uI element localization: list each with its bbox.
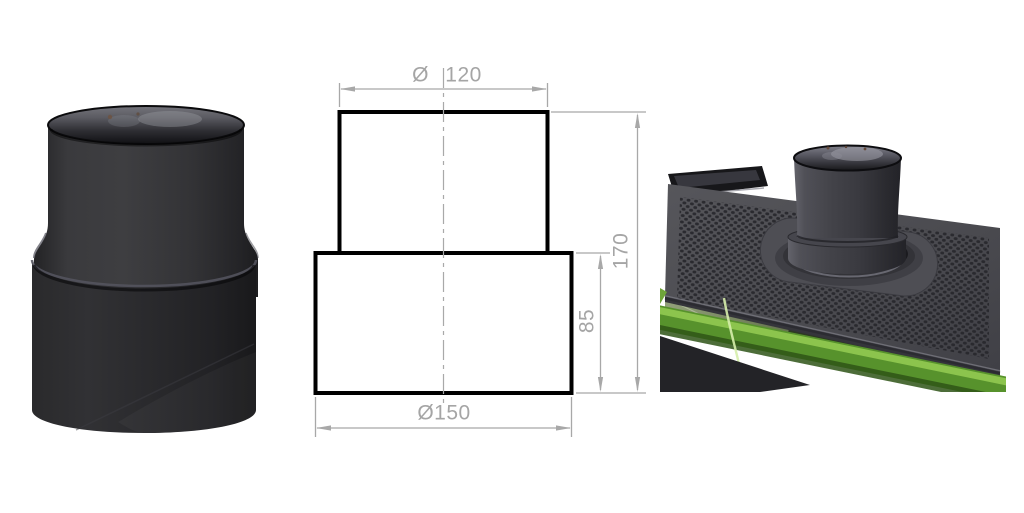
dimension-label-base-height: 85 — [577, 309, 598, 333]
dimension-label-top-diameter: Ø 120 — [412, 65, 482, 86]
product-composite-image: { "drawing": { "labels": { "top_diameter… — [0, 0, 1024, 513]
reducer-top-opening — [48, 106, 244, 145]
technical-drawing — [300, 55, 660, 450]
reducer-photo — [18, 92, 266, 440]
dimension-label-base-diameter: Ø150 — [417, 403, 470, 424]
installed-pipe — [788, 146, 907, 275]
reducer-base-section — [32, 260, 256, 433]
reducer-top-pipe-section — [34, 125, 258, 297]
dimension-label-total-height: 170 — [611, 233, 632, 270]
installed-photo — [660, 140, 1006, 392]
installed-pipe-opening — [794, 146, 901, 171]
